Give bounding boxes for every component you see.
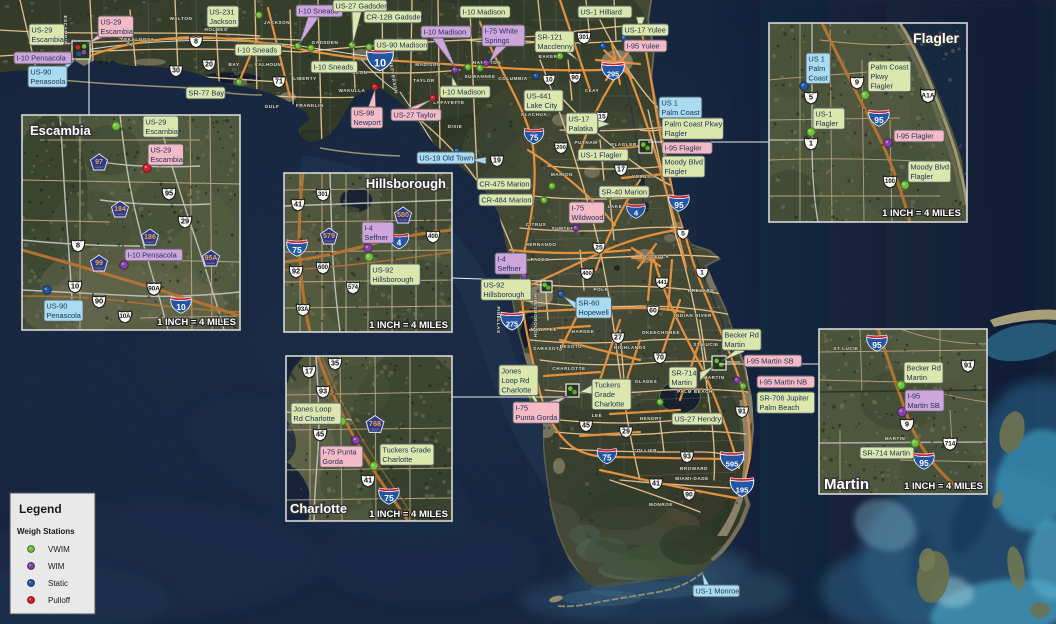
svg-text:CHARLOTTE: CHARLOTTE xyxy=(552,366,585,371)
svg-text:Hillsborough: Hillsborough xyxy=(372,275,413,284)
svg-text:Pulloff: Pulloff xyxy=(48,596,71,605)
svg-text:71: 71 xyxy=(275,78,283,86)
svg-text:Flagler: Flagler xyxy=(815,119,838,128)
svg-text:Moody Blvd: Moody Blvd xyxy=(910,163,949,172)
svg-text:91: 91 xyxy=(738,408,746,416)
svg-text:US-27 Hendry: US-27 Hendry xyxy=(674,415,721,424)
svg-text:CR-12B Gadsden: CR-12B Gadsden xyxy=(366,13,424,22)
svg-text:COUNTY: COUNTY xyxy=(94,268,104,270)
svg-text:ST LUCIE: ST LUCIE xyxy=(833,346,858,351)
svg-text:I-10 Pensacola: I-10 Pensacola xyxy=(16,54,66,63)
svg-text:20: 20 xyxy=(205,61,213,69)
svg-text:BROWARD: BROWARD xyxy=(680,466,708,471)
svg-text:US-441: US-441 xyxy=(526,92,551,101)
svg-text:1: 1 xyxy=(700,269,704,276)
svg-text:Charlotte: Charlotte xyxy=(501,385,531,394)
svg-text:Martin SB: Martin SB xyxy=(907,401,940,410)
svg-text:Charlotte: Charlotte xyxy=(290,501,347,516)
svg-text:US-90 Madison: US-90 Madison xyxy=(376,41,427,50)
svg-text:Jones: Jones xyxy=(501,367,521,376)
svg-text:1 INCH = 4 MILES: 1 INCH = 4 MILES xyxy=(904,481,983,492)
svg-text:BAY: BAY xyxy=(229,62,240,67)
svg-text:19: 19 xyxy=(493,157,501,165)
svg-text:HOLMES: HOLMES xyxy=(205,27,228,32)
svg-text:580: 580 xyxy=(397,212,409,219)
svg-text:8: 8 xyxy=(194,38,198,46)
svg-text:MONROE: MONROE xyxy=(649,502,673,507)
svg-text:ST LUCIE: ST LUCIE xyxy=(693,342,718,347)
svg-text:I-95 Yulee: I-95 Yulee xyxy=(626,42,659,51)
svg-text:29: 29 xyxy=(622,428,630,436)
svg-text:WALTON: WALTON xyxy=(170,16,193,21)
svg-text:Macclenny: Macclenny xyxy=(537,42,573,51)
svg-text:Martin: Martin xyxy=(906,373,927,382)
svg-text:93: 93 xyxy=(683,453,691,461)
svg-text:US-1 Monroe: US-1 Monroe xyxy=(695,587,739,596)
svg-text:90: 90 xyxy=(685,491,693,498)
svg-text:US-231: US-231 xyxy=(209,8,234,17)
svg-text:Flagler: Flagler xyxy=(664,167,687,176)
svg-text:Palm: Palm xyxy=(808,64,825,73)
svg-text:99: 99 xyxy=(95,260,103,267)
svg-text:GULF: GULF xyxy=(265,104,280,109)
svg-text:SUWANNEE: SUWANNEE xyxy=(465,74,496,79)
svg-text:301: 301 xyxy=(318,192,329,198)
svg-text:1 INCH = 4 MILES: 1 INCH = 4 MILES xyxy=(369,320,448,331)
svg-text:41: 41 xyxy=(364,476,372,485)
svg-text:200: 200 xyxy=(556,145,566,151)
svg-text:GLADES: GLADES xyxy=(635,379,657,384)
svg-text:75: 75 xyxy=(384,493,394,503)
svg-text:WAKULLA: WAKULLA xyxy=(339,88,366,93)
svg-text:LAKE: LAKE xyxy=(608,204,623,209)
svg-text:75: 75 xyxy=(292,245,302,255)
svg-text:FLAGLER: FLAGLER xyxy=(611,142,637,147)
svg-text:BAKER: BAKER xyxy=(538,54,557,59)
svg-text:VOLUSIA: VOLUSIA xyxy=(632,174,656,179)
svg-text:17: 17 xyxy=(617,166,625,174)
svg-text:I-10 Madison: I-10 Madison xyxy=(442,88,485,97)
svg-text:30: 30 xyxy=(172,67,180,75)
svg-text:41: 41 xyxy=(652,480,660,488)
svg-text:714: 714 xyxy=(945,440,956,447)
svg-text:US-17: US-17 xyxy=(568,115,589,124)
svg-text:I-10 Sneads: I-10 Sneads xyxy=(237,46,277,55)
svg-text:US-29: US-29 xyxy=(145,118,166,127)
svg-text:35: 35 xyxy=(331,359,339,368)
svg-text:I-10 Madison: I-10 Madison xyxy=(423,28,466,37)
svg-text:Seffner: Seffner xyxy=(364,233,388,242)
svg-text:WIM: WIM xyxy=(48,562,65,571)
svg-text:Flagler: Flagler xyxy=(910,172,933,181)
svg-text:HARDEE: HARDEE xyxy=(572,329,595,334)
svg-text:Flagler: Flagler xyxy=(913,30,959,46)
svg-text:POLK: POLK xyxy=(594,287,609,292)
svg-text:15: 15 xyxy=(598,113,606,120)
svg-text:SR-714 Martin: SR-714 Martin xyxy=(862,449,910,458)
svg-text:Springs: Springs xyxy=(484,36,509,45)
svg-text:10A: 10A xyxy=(119,314,131,320)
svg-text:45: 45 xyxy=(316,430,324,439)
svg-text:10: 10 xyxy=(374,57,386,69)
svg-text:MARION: MARION xyxy=(551,172,573,177)
svg-text:HERNANDO: HERNANDO xyxy=(526,242,557,247)
svg-text:95A: 95A xyxy=(205,255,218,262)
svg-text:70: 70 xyxy=(656,354,664,362)
svg-text:BREVARD: BREVARD xyxy=(688,288,714,293)
svg-text:Legend: Legend xyxy=(19,502,62,516)
svg-text:295: 295 xyxy=(607,69,619,78)
svg-text:SUMTER: SUMTER xyxy=(552,226,575,231)
svg-text:9: 9 xyxy=(905,420,909,429)
svg-text:595: 595 xyxy=(726,460,739,469)
svg-text:I-95 Martin NB: I-95 Martin NB xyxy=(759,378,807,387)
svg-text:Escambia: Escambia xyxy=(150,155,183,164)
svg-text:COLLIER: COLLIER xyxy=(633,448,657,453)
svg-text:I-95: I-95 xyxy=(907,392,920,401)
svg-text:Pkwy: Pkwy xyxy=(870,72,888,81)
svg-text:OSCEOLA: OSCEOLA xyxy=(643,254,670,259)
svg-text:Seffner: Seffner xyxy=(497,264,521,273)
svg-text:Gorda: Gorda xyxy=(322,457,343,466)
svg-text:Martin: Martin xyxy=(824,476,869,493)
svg-text:Punta Gorda: Punta Gorda xyxy=(515,413,558,422)
svg-text:95: 95 xyxy=(874,115,884,125)
svg-text:17: 17 xyxy=(305,367,313,376)
svg-text:Static: Static xyxy=(48,579,68,588)
svg-text:SR-77 Bay: SR-77 Bay xyxy=(188,89,224,98)
svg-text:US-92: US-92 xyxy=(483,281,504,290)
svg-text:COUNTY: COUNTY xyxy=(370,429,380,431)
svg-text:95: 95 xyxy=(919,458,929,468)
svg-text:MADISON: MADISON xyxy=(415,62,441,67)
svg-text:400: 400 xyxy=(582,271,592,277)
svg-text:579: 579 xyxy=(323,233,335,240)
svg-text:93: 93 xyxy=(319,387,327,396)
svg-text:US-1 Flagler: US-1 Flagler xyxy=(580,151,622,160)
svg-text:GADSDEN: GADSDEN xyxy=(312,40,339,45)
svg-text:Escambia: Escambia xyxy=(145,127,178,136)
svg-text:MARTIN: MARTIN xyxy=(885,436,905,441)
svg-text:Becker Rd: Becker Rd xyxy=(724,331,759,340)
svg-text:1: 1 xyxy=(809,139,813,148)
svg-text:I-10 Sneads: I-10 Sneads xyxy=(298,7,338,16)
svg-text:I-95 Martin SB: I-95 Martin SB xyxy=(746,357,793,366)
svg-text:TAYLOR: TAYLOR xyxy=(413,78,435,83)
svg-text:Jackson: Jackson xyxy=(209,17,236,26)
svg-text:INDIAN RIVER: INDIAN RIVER xyxy=(674,313,712,318)
svg-text:91: 91 xyxy=(964,361,972,370)
svg-text:US-92: US-92 xyxy=(372,266,393,275)
svg-text:Hillsborough: Hillsborough xyxy=(366,176,446,191)
svg-text:SR-714: SR-714 xyxy=(671,369,696,378)
svg-text:Moody Blvd: Moody Blvd xyxy=(664,158,703,167)
svg-text:PASCO: PASCO xyxy=(531,257,550,262)
svg-text:I-75: I-75 xyxy=(515,404,528,413)
svg-text:MARTIN: MARTIN xyxy=(703,375,724,380)
svg-text:HILLSBOROUGH: HILLSBOROUGH xyxy=(533,294,538,338)
svg-text:Penascola: Penascola xyxy=(46,311,81,320)
svg-text:97: 97 xyxy=(95,159,103,166)
svg-text:SARASOTA: SARASOTA xyxy=(533,346,563,351)
svg-text:US-1: US-1 xyxy=(815,110,832,119)
svg-text:I-4: I-4 xyxy=(364,224,373,233)
svg-text:Penasoola: Penasoola xyxy=(30,77,66,86)
svg-text:A1A: A1A xyxy=(921,92,934,99)
svg-text:25: 25 xyxy=(595,244,603,251)
svg-text:Charlotte: Charlotte xyxy=(382,455,412,464)
svg-text:Charlotte: Charlotte xyxy=(594,399,624,408)
svg-text:Palatka: Palatka xyxy=(568,124,594,133)
svg-text:45: 45 xyxy=(582,422,590,430)
svg-text:US-19 Old Town: US-19 Old Town xyxy=(419,154,473,163)
svg-text:574: 574 xyxy=(348,285,359,291)
svg-text:Tuckers Grade: Tuckers Grade xyxy=(382,446,431,455)
svg-text:1 INCH = 4 MILES: 1 INCH = 4 MILES xyxy=(882,208,961,219)
svg-text:Lake City: Lake City xyxy=(526,101,557,110)
svg-text:US-17 Yulee: US-17 Yulee xyxy=(624,26,665,35)
svg-text:COUNTY: COUNTY xyxy=(94,167,104,169)
svg-text:Grade: Grade xyxy=(594,390,615,399)
svg-text:SR-706 Jupiter: SR-706 Jupiter xyxy=(759,394,809,403)
svg-text:ALACHUA: ALACHUA xyxy=(521,112,548,117)
svg-text:90: 90 xyxy=(571,74,579,81)
svg-text:OKEECHOBEE: OKEECHOBEE xyxy=(642,330,680,335)
svg-text:768: 768 xyxy=(369,419,381,428)
svg-text:DIXIE: DIXIE xyxy=(448,124,463,129)
svg-text:I-95 Flagler: I-95 Flagler xyxy=(896,132,934,141)
svg-text:US-29: US-29 xyxy=(31,26,52,35)
svg-text:CALHOUN: CALHOUN xyxy=(255,62,282,67)
svg-text:US 1: US 1 xyxy=(661,99,677,108)
svg-text:5: 5 xyxy=(681,230,685,237)
svg-text:COUNTY: COUNTY xyxy=(145,242,155,244)
svg-text:Rd Charlotte: Rd Charlotte xyxy=(293,414,335,423)
svg-text:LIBERTY: LIBERTY xyxy=(293,76,317,81)
svg-text:Palm Coast: Palm Coast xyxy=(870,63,908,72)
svg-text:Martin: Martin xyxy=(671,378,692,387)
svg-text:29: 29 xyxy=(181,217,189,226)
svg-text:MIAMI-DADE: MIAMI-DADE xyxy=(675,476,709,481)
svg-text:US 1: US 1 xyxy=(808,55,824,64)
svg-text:US-98: US-98 xyxy=(353,109,374,118)
svg-text:600: 600 xyxy=(318,265,329,271)
svg-text:Flagler: Flagler xyxy=(870,81,893,90)
svg-text:US-1 Hilliard: US-1 Hilliard xyxy=(580,8,621,17)
svg-text:I-75 Punta: I-75 Punta xyxy=(322,448,357,457)
svg-text:8: 8 xyxy=(76,241,80,250)
svg-text:Wildwood: Wildwood xyxy=(571,213,603,222)
svg-text:93A: 93A xyxy=(297,307,309,313)
svg-text:PUTNAM: PUTNAM xyxy=(575,140,598,145)
svg-text:Palm Beach: Palm Beach xyxy=(759,403,799,412)
svg-text:1 INCH = 4 MILES: 1 INCH = 4 MILES xyxy=(369,509,448,520)
svg-text:SR-60: SR-60 xyxy=(578,299,599,308)
svg-text:I-10 Pensacola: I-10 Pensacola xyxy=(127,251,177,260)
svg-text:COUNTY: COUNTY xyxy=(324,241,334,243)
svg-text:HIGHLANDS: HIGHLANDS xyxy=(614,345,646,350)
svg-text:Escambia: Escambia xyxy=(100,27,133,36)
svg-text:10: 10 xyxy=(71,282,79,291)
svg-text:DESOTO: DESOTO xyxy=(560,344,583,349)
svg-text:I-95 Flagler: I-95 Flagler xyxy=(664,144,702,153)
svg-text:60: 60 xyxy=(649,307,657,314)
svg-text:95: 95 xyxy=(165,189,173,198)
svg-text:US-27 Taylor: US-27 Taylor xyxy=(393,111,436,120)
svg-text:Hopewell: Hopewell xyxy=(578,308,609,317)
svg-text:Jones Loop: Jones Loop xyxy=(293,405,331,414)
svg-text:301: 301 xyxy=(579,35,590,41)
svg-text:275: 275 xyxy=(506,319,518,328)
svg-text:CR-484 Marion: CR-484 Marion xyxy=(481,196,531,205)
svg-text:US-27 Gadsden: US-27 Gadsden xyxy=(335,2,388,11)
svg-text:1 INCH = 4 MILES: 1 INCH = 4 MILES xyxy=(157,317,236,328)
svg-text:I-10 Madison: I-10 Madison xyxy=(462,8,505,17)
svg-text:10: 10 xyxy=(176,302,186,312)
svg-text:9: 9 xyxy=(855,78,859,87)
svg-text:Tuckers: Tuckers xyxy=(594,381,620,390)
svg-text:Loop Rd: Loop Rd xyxy=(501,376,529,385)
svg-text:90A: 90A xyxy=(148,285,160,292)
svg-text:I-4: I-4 xyxy=(497,255,506,264)
svg-text:4: 4 xyxy=(397,239,402,248)
svg-text:95: 95 xyxy=(674,200,684,210)
svg-text:Escambia: Escambia xyxy=(31,35,64,44)
svg-text:Newport: Newport xyxy=(353,118,381,127)
svg-text:CITRUS: CITRUS xyxy=(526,222,546,227)
svg-text:COUNTY: COUNTY xyxy=(206,263,216,265)
svg-text:10: 10 xyxy=(545,76,553,83)
svg-text:PALM BEACH: PALM BEACH xyxy=(677,389,713,394)
svg-text:I-10 Sneads: I-10 Sneads xyxy=(313,63,353,72)
svg-text:COUNTY: COUNTY xyxy=(115,214,125,216)
svg-text:FRANKLIN: FRANKLIN xyxy=(296,103,324,108)
svg-text:US-90: US-90 xyxy=(46,302,67,311)
svg-text:186: 186 xyxy=(144,234,156,241)
svg-text:Coast: Coast xyxy=(808,73,827,82)
svg-text:Weigh Stations: Weigh Stations xyxy=(17,527,75,536)
svg-text:CR-475 Marion: CR-475 Marion xyxy=(479,180,529,189)
svg-text:PINELLAS: PINELLAS xyxy=(496,306,501,333)
svg-text:75: 75 xyxy=(530,134,539,143)
svg-text:41: 41 xyxy=(294,200,302,209)
svg-text:Martin: Martin xyxy=(724,340,745,349)
svg-text:Hillsborough: Hillsborough xyxy=(483,290,524,299)
svg-text:75: 75 xyxy=(603,454,612,463)
svg-text:441: 441 xyxy=(657,280,667,286)
svg-text:95: 95 xyxy=(872,340,882,350)
svg-text:100: 100 xyxy=(885,179,896,185)
svg-text:SR-40 Marion: SR-40 Marion xyxy=(601,188,647,197)
svg-text:Escambia: Escambia xyxy=(30,123,91,138)
svg-text:92: 92 xyxy=(292,267,300,276)
svg-text:US-29: US-29 xyxy=(100,18,121,27)
svg-text:Flagler: Flagler xyxy=(664,129,687,138)
svg-text:195: 195 xyxy=(736,486,749,495)
svg-text:US-29: US-29 xyxy=(150,146,171,155)
svg-text:I-75 White: I-75 White xyxy=(484,27,518,36)
svg-text:US-90: US-90 xyxy=(30,68,51,77)
svg-text:5: 5 xyxy=(809,93,813,102)
svg-text:JACKSON: JACKSON xyxy=(264,20,290,25)
svg-text:LEE: LEE xyxy=(592,413,603,418)
svg-text:Palm Coast Pkwy: Palm Coast Pkwy xyxy=(664,120,722,129)
svg-text:VWIM: VWIM xyxy=(48,545,70,554)
svg-text:Palm Coast: Palm Coast xyxy=(661,108,699,117)
svg-text:Becker Rd: Becker Rd xyxy=(906,364,941,373)
svg-text:SR-121: SR-121 xyxy=(537,33,562,42)
svg-text:I-75: I-75 xyxy=(571,204,584,213)
svg-text:HENDRY: HENDRY xyxy=(640,416,663,421)
svg-text:184: 184 xyxy=(114,206,126,213)
svg-text:COLUMBIA: COLUMBIA xyxy=(498,76,527,81)
svg-text:LAFAYETTE: LAFAYETTE xyxy=(433,100,464,105)
svg-text:COUNTY: COUNTY xyxy=(398,220,408,222)
svg-text:90: 90 xyxy=(95,297,103,306)
svg-text:400: 400 xyxy=(428,234,439,240)
svg-text:CLAY: CLAY xyxy=(585,88,599,93)
svg-text:27: 27 xyxy=(614,334,622,342)
